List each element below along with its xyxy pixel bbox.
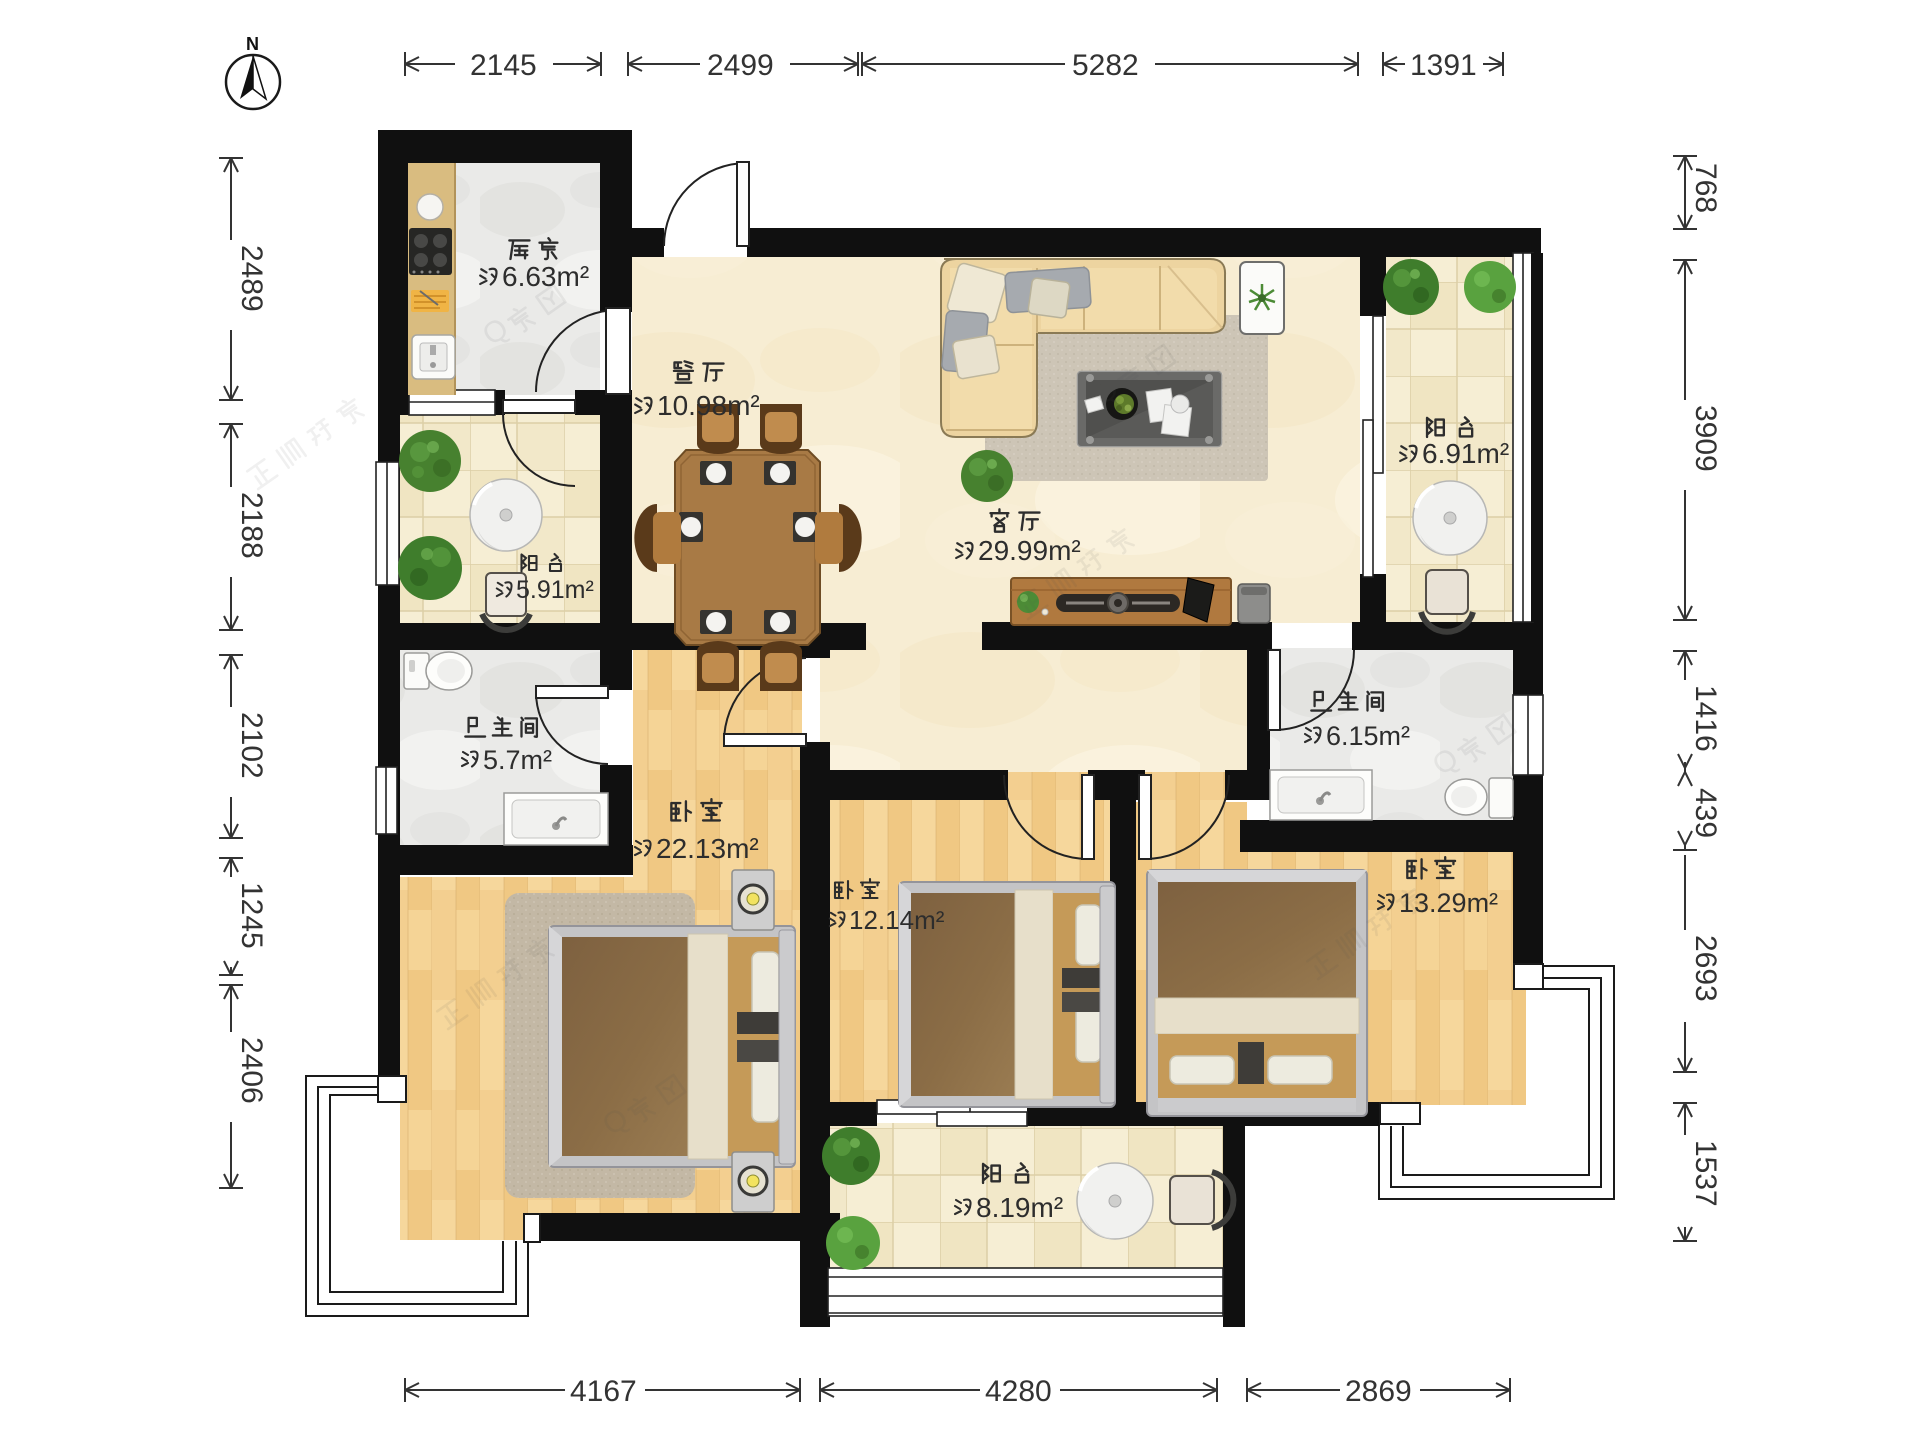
svg-text:6.63m²: 6.63m²	[502, 261, 589, 292]
svg-text:29.99m²: 29.99m²	[978, 535, 1081, 566]
svg-text:4280: 4280	[985, 1375, 1052, 1408]
svg-text:2499: 2499	[707, 49, 774, 82]
svg-text:6.91m²: 6.91m²	[1422, 438, 1509, 469]
svg-text:N: N	[246, 34, 259, 54]
svg-text:2869: 2869	[1345, 1375, 1412, 1408]
svg-text:22.13m²: 22.13m²	[656, 833, 759, 864]
svg-text:439: 439	[1689, 788, 1722, 838]
svg-text:2489: 2489	[235, 245, 268, 312]
svg-text:5.91m²: 5.91m²	[516, 576, 594, 604]
svg-text:2188: 2188	[235, 492, 268, 559]
svg-text:2693: 2693	[1689, 935, 1722, 1002]
svg-text:4167: 4167	[570, 1375, 637, 1408]
svg-text:1416: 1416	[1689, 685, 1722, 752]
svg-text:2406: 2406	[235, 1037, 268, 1104]
svg-text:2145: 2145	[470, 49, 537, 82]
svg-text:8.19m²: 8.19m²	[976, 1192, 1063, 1223]
svg-text:12.14m²: 12.14m²	[849, 905, 945, 935]
svg-text:1537: 1537	[1689, 1140, 1722, 1207]
svg-text:10.98m²: 10.98m²	[657, 390, 760, 421]
svg-text:1245: 1245	[235, 882, 268, 949]
svg-text:2102: 2102	[235, 712, 268, 779]
svg-text:3909: 3909	[1689, 405, 1722, 472]
svg-text:1391: 1391	[1410, 49, 1477, 82]
svg-text:5.7m²: 5.7m²	[483, 745, 552, 775]
svg-text:5282: 5282	[1072, 49, 1139, 82]
svg-text:768: 768	[1689, 163, 1722, 213]
svg-text:6.15m²: 6.15m²	[1326, 721, 1410, 751]
